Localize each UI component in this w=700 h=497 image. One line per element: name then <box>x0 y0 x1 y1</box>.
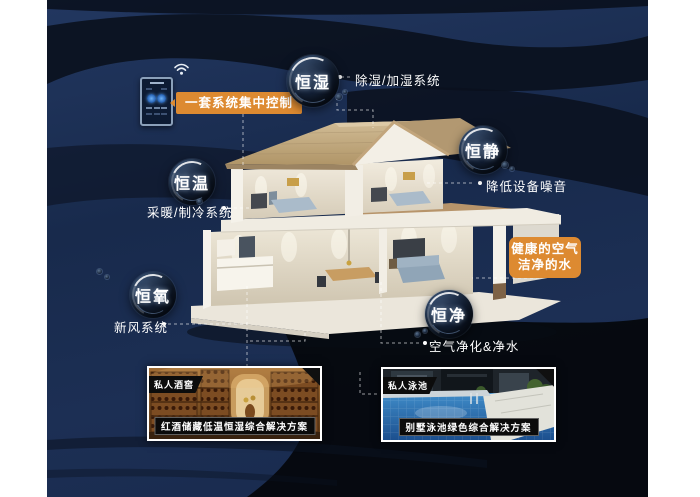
pool-tag: 私人泳池 <box>383 377 437 394</box>
panel-title-bar <box>150 82 164 84</box>
wine-cellar-card: 私人酒窖 红酒储藏低温恒湿综合解决方案 <box>147 366 322 441</box>
infographic-canvas: 一套系统集中控制 健康的空气 洁净的水 恒湿 恒静 恒温 恒氧 恒净 <box>47 0 648 497</box>
wine-cellar-caption: 红酒储藏低温恒湿综合解决方案 <box>154 417 315 435</box>
bubble-dot <box>415 332 420 337</box>
note-temperature: 采暖/制冷系统 <box>147 202 232 221</box>
bubble-dot <box>343 90 347 94</box>
health-callout: 健康的空气 洁净的水 <box>509 237 581 278</box>
bubble-temperature: 恒温 <box>169 159 215 205</box>
pool-caption: 别墅泳池绿色综合解决方案 <box>398 418 538 436</box>
health-callout-line1: 健康的空气 <box>509 241 581 257</box>
bubble-quiet: 恒静 <box>459 126 507 174</box>
smart-thermostat-panel <box>140 77 173 126</box>
note-purity: 空气净化&净水 <box>429 336 519 355</box>
bubble-humidity-label: 恒湿 <box>295 69 331 93</box>
note-quiet: 降低设备噪音 <box>486 176 567 195</box>
infographic-page: 一套系统集中控制 健康的空气 洁净的水 恒湿 恒静 恒温 恒氧 恒净 <box>0 0 700 497</box>
note-oxygen: 新风系统 <box>114 317 168 336</box>
bubble-dot <box>336 94 342 100</box>
wine-cellar-tag: 私人酒窖 <box>149 376 203 393</box>
bubble-dot <box>423 329 427 333</box>
control-callout: 一套系统集中控制 <box>176 92 302 114</box>
panel-dial-icon <box>157 94 166 103</box>
bubble-oxygen: 恒氧 <box>130 272 176 318</box>
bubble-dot <box>502 162 508 168</box>
panel-dial-icon <box>147 94 156 103</box>
bubble-dot <box>105 275 109 279</box>
bubble-purity-label: 恒净 <box>431 302 467 326</box>
bubble-oxygen-label: 恒氧 <box>135 283 171 307</box>
wifi-icon <box>173 62 190 76</box>
bubble-dot <box>510 167 514 171</box>
health-callout-line2: 洁净的水 <box>509 257 581 273</box>
bubble-quiet-label: 恒静 <box>465 138 501 162</box>
bubble-dot <box>97 269 102 274</box>
bubble-humidity: 恒湿 <box>287 55 339 107</box>
note-humidity: 除湿/加湿系统 <box>355 70 440 89</box>
bubble-temperature-label: 恒温 <box>174 170 210 194</box>
pool-card: 私人泳池 别墅泳池绿色综合解决方案 <box>381 367 556 442</box>
bubble-purity: 恒净 <box>425 290 473 338</box>
